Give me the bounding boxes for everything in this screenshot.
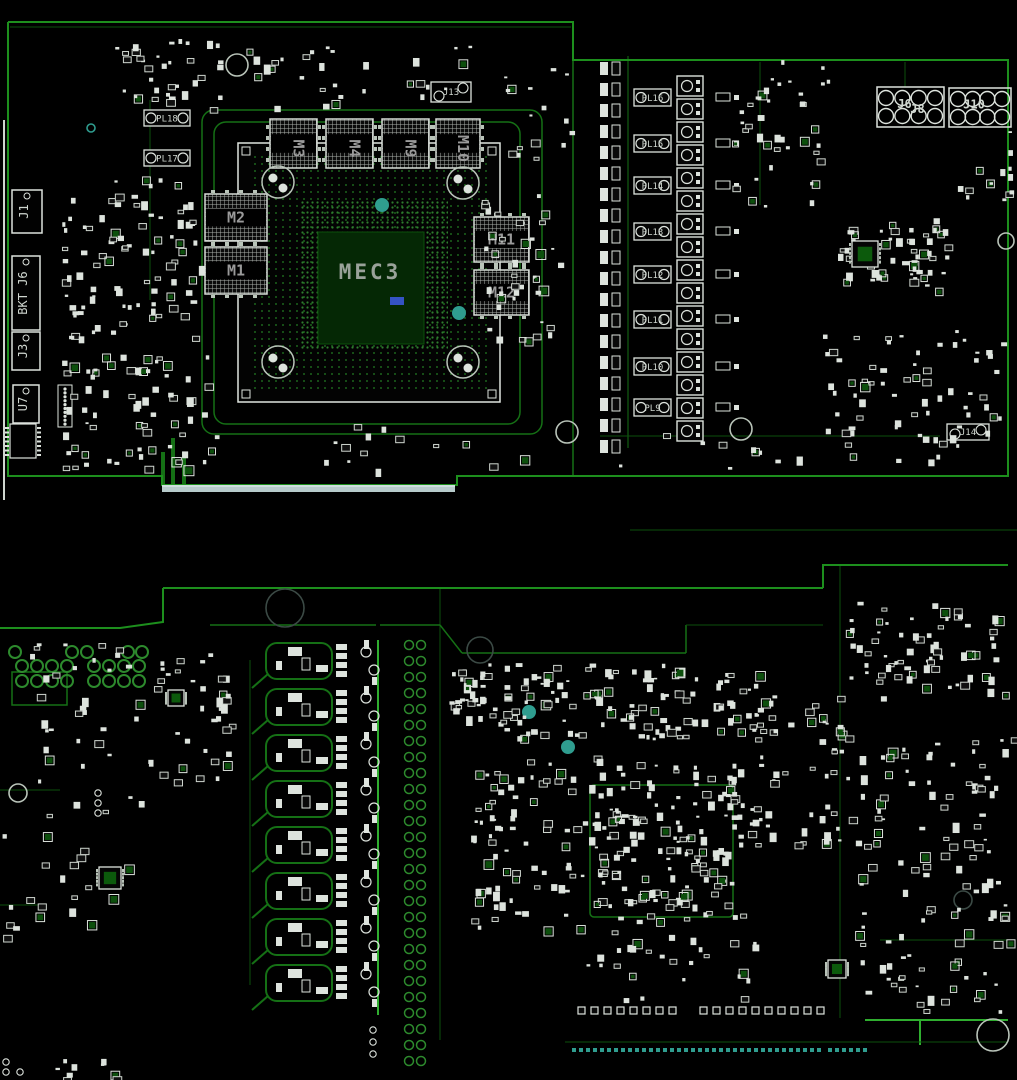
power-header-J6-J8: J6J8 bbox=[877, 87, 944, 127]
svg-text:PL11: PL11 bbox=[642, 316, 664, 326]
inductor-PL9: PL9 bbox=[634, 399, 671, 416]
header-J13: J13 bbox=[431, 82, 471, 102]
inductor-PL16: PL16 bbox=[634, 89, 671, 106]
inductor-PL18: PL18 bbox=[144, 110, 190, 126]
vrm-phase-squares bbox=[677, 76, 703, 441]
svg-text:U7: U7 bbox=[16, 397, 30, 411]
svg-text:J3: J3 bbox=[16, 344, 30, 358]
via-columns bbox=[405, 641, 426, 1066]
back-finger-dashes bbox=[572, 1048, 867, 1052]
memory-chip-M9: M9 bbox=[378, 119, 433, 168]
qfn-chips bbox=[96, 690, 849, 978]
edge-connectors: J1BKT J6J3U7 bbox=[12, 190, 42, 423]
svg-text:M2: M2 bbox=[227, 209, 245, 227]
svg-text:PL12: PL12 bbox=[642, 271, 664, 281]
svg-text:PL9: PL9 bbox=[644, 404, 660, 414]
pcb-board-drawing: MEC3M3M4M9M10M2M1M11M12PL18PL17PL16PL15P… bbox=[0, 0, 1017, 1080]
svg-text:PL13: PL13 bbox=[642, 228, 664, 238]
svg-text:M1: M1 bbox=[227, 262, 245, 280]
svg-text:J1: J1 bbox=[17, 204, 31, 218]
svg-text:PL16: PL16 bbox=[642, 94, 664, 104]
back-pad-row bbox=[578, 1007, 824, 1014]
inductor-PL14: PL14 bbox=[634, 177, 671, 194]
decoupling-strip bbox=[600, 62, 620, 453]
svg-text:M10: M10 bbox=[454, 135, 472, 162]
svg-text:PL18: PL18 bbox=[156, 115, 178, 125]
memory-chip-M2: M2 bbox=[205, 190, 267, 245]
inductor-PL12: PL12 bbox=[634, 266, 671, 283]
svg-text:PL10: PL10 bbox=[642, 363, 664, 373]
svg-text:PL15: PL15 bbox=[642, 140, 664, 150]
back-holes bbox=[3, 589, 1009, 1075]
svg-text:M3: M3 bbox=[290, 139, 308, 157]
svg-text:PL17: PL17 bbox=[156, 155, 178, 165]
power-header-J10: J10 bbox=[949, 88, 1011, 127]
svg-text:MEC3: MEC3 bbox=[339, 260, 402, 284]
memory-chip-M1: M1 bbox=[205, 243, 267, 298]
connector-J3: J3 bbox=[12, 332, 40, 370]
memory-chip-M3: M3 bbox=[266, 119, 321, 168]
golden-fingers bbox=[162, 485, 455, 492]
svg-text:J14: J14 bbox=[960, 428, 976, 438]
connector-BKT-J6: BKT J6 bbox=[12, 256, 40, 330]
svg-text:PL14: PL14 bbox=[642, 182, 664, 192]
component-clusters bbox=[3, 602, 1017, 1080]
inductor-PL13: PL13 bbox=[634, 223, 671, 240]
memory-chip-M10: M10 bbox=[432, 119, 484, 168]
svg-text:BKT J6: BKT J6 bbox=[16, 271, 30, 314]
svg-text:J8: J8 bbox=[910, 102, 924, 116]
back-traces bbox=[0, 565, 1008, 1045]
inductor-PL11: PL11 bbox=[634, 311, 671, 328]
inductor-PL10: PL10 bbox=[634, 358, 671, 375]
memory-chip-M4: M4 bbox=[322, 119, 377, 168]
connector-U7: U7 bbox=[13, 385, 39, 423]
svg-text:M9: M9 bbox=[402, 139, 420, 157]
inductor-PL17: PL17 bbox=[144, 150, 190, 166]
qfn-chips bbox=[849, 241, 881, 267]
pcb-canvas: MEC3M3M4M9M10M2M1M11M12PL18PL17PL16PL15P… bbox=[0, 0, 1017, 1080]
connector-J1: J1 bbox=[12, 190, 42, 233]
back-board bbox=[0, 565, 1017, 1080]
inductor-PL15: PL15 bbox=[634, 135, 671, 152]
back-vrm-phases bbox=[252, 640, 379, 1010]
svg-text:J10: J10 bbox=[963, 98, 985, 112]
front-board: MEC3M3M4M9M10M2M1M11M12PL18PL17PL16PL15P… bbox=[4, 22, 1017, 530]
svg-text:M4: M4 bbox=[346, 139, 364, 157]
